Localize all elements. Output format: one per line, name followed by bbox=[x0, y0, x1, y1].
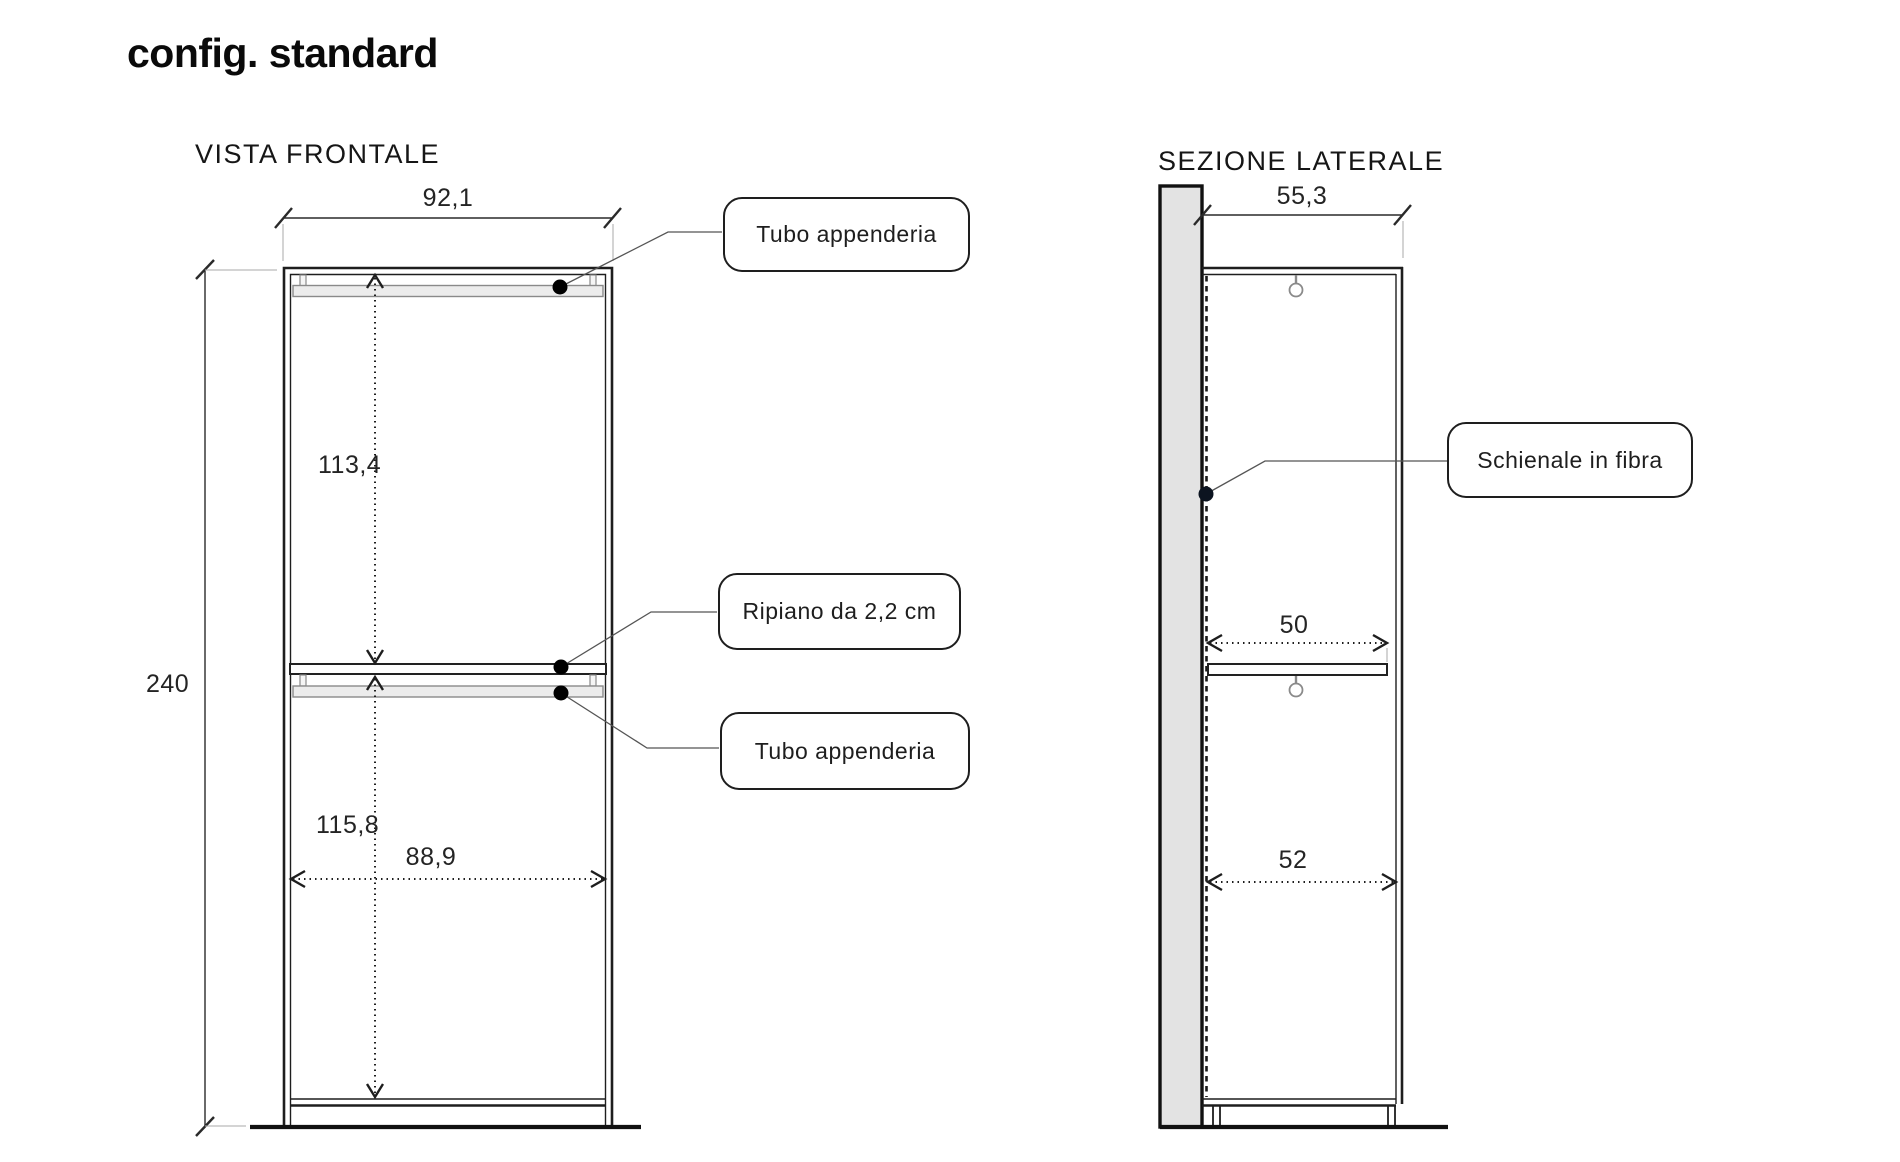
top-tube-pin bbox=[1290, 275, 1303, 297]
side-shelf bbox=[1208, 664, 1387, 675]
side-depth-dimension-line bbox=[1194, 205, 1411, 258]
page-title: config. standard bbox=[127, 30, 438, 77]
side-view-drawing bbox=[1160, 186, 1448, 1127]
side-leader-line bbox=[1206, 461, 1447, 494]
inner-width-dimension bbox=[291, 871, 605, 887]
callout-top-tube: Tubo appenderia bbox=[723, 197, 970, 272]
inner-width-dimension-label: 88,9 bbox=[406, 843, 457, 872]
upper-section-dimension: 113,4 bbox=[318, 451, 381, 480]
front-width-dimension-line bbox=[275, 208, 621, 261]
side-panel-section bbox=[1160, 186, 1202, 1127]
shelf-pin bbox=[1290, 676, 1303, 697]
front-view-label: VISTA FRONTALE bbox=[195, 139, 440, 170]
side-view-label: SEZIONE LATERALE bbox=[1158, 146, 1444, 177]
callout-bottom-tube-label: Tubo appenderia bbox=[755, 738, 936, 765]
callout-shelf: Ripiano da 2,2 cm bbox=[718, 573, 961, 650]
callout-shelf-label: Ripiano da 2,2 cm bbox=[743, 598, 937, 625]
lower-section-dimension: 115,8 bbox=[316, 811, 379, 840]
front-leader-dots bbox=[553, 280, 569, 701]
callout-back-panel: Schienale in fibra bbox=[1447, 422, 1693, 498]
front-height-dimension: 240 bbox=[146, 670, 189, 699]
lower-depth-dimension bbox=[1208, 874, 1396, 890]
shelf-depth-dimension-label: 50 bbox=[1280, 611, 1309, 640]
side-depth-dimension: 55,3 bbox=[1277, 182, 1328, 211]
lower-height-dimension bbox=[367, 677, 383, 1097]
side-cabinet-outline bbox=[1202, 267, 1403, 1126]
callout-bottom-tube: Tubo appenderia bbox=[720, 712, 970, 790]
callout-back-panel-label: Schienale in fibra bbox=[1477, 447, 1662, 474]
front-height-dimension-line bbox=[196, 260, 277, 1136]
callout-top-tube-label: Tubo appenderia bbox=[756, 221, 937, 248]
lower-depth-dimension-label: 52 bbox=[1279, 846, 1308, 875]
technical-drawing-page: config. standard VISTA FRONTALE SEZIONE … bbox=[0, 0, 1900, 1162]
front-view-drawing bbox=[196, 208, 722, 1136]
front-width-dimension: 92,1 bbox=[423, 184, 474, 213]
side-leader-dot bbox=[1199, 487, 1214, 502]
